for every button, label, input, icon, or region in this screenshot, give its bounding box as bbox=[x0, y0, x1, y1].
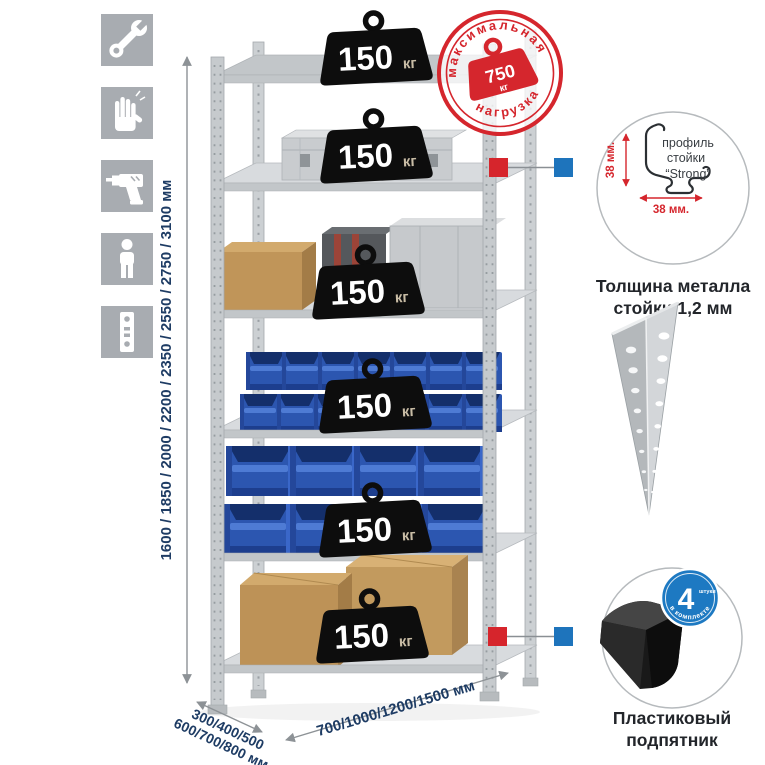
large-bins-back-row bbox=[226, 446, 486, 496]
max-load-stamp: 750 кг максимальная нагрузка bbox=[425, 0, 574, 148]
profile-horizontal-dim: 38 мм. bbox=[653, 204, 689, 216]
callout-red-marker bbox=[489, 158, 508, 177]
callout-blue-marker bbox=[554, 627, 573, 646]
shelf-load-unit: кг bbox=[401, 403, 416, 421]
infographic-canvas: 1600 / 1850 / 2000 / 2200 / 2350 / 2550 … bbox=[0, 0, 765, 765]
shelf-load-badge-2: 150 кг bbox=[317, 108, 433, 184]
drill-icon bbox=[101, 160, 153, 212]
profile-vertical-dim: 38 мм. bbox=[605, 142, 617, 178]
assembly-icons-column bbox=[101, 14, 153, 358]
height-dimension-label: 1600 / 1850 / 2000 / 2200 / 2350 / 2550 … bbox=[158, 180, 175, 561]
perforated-post-icon bbox=[101, 306, 153, 358]
badge-quantity-value: 4 bbox=[678, 583, 695, 616]
product-infographic: 1600 / 1850 / 2000 / 2200 / 2350 / 2550 … bbox=[0, 0, 765, 765]
callout-blue-marker bbox=[554, 158, 573, 177]
shelf-load-value: 150 bbox=[336, 386, 393, 426]
foot-caption-line2: подпятник bbox=[626, 730, 718, 750]
plastic-foot-detail: 4 штуки в комплекте Пластиковый подпятни… bbox=[600, 568, 742, 750]
profile-caption-line1: Толщина металла bbox=[596, 276, 751, 296]
shelf-load-value: 150 bbox=[329, 272, 386, 312]
corner-post-image bbox=[612, 303, 678, 515]
shelf-load-value: 150 bbox=[336, 510, 393, 550]
wrench-icon bbox=[101, 14, 153, 66]
profile-label-line1: профиль bbox=[662, 136, 714, 150]
shelf-load-badge-1: 150 кг bbox=[317, 10, 433, 86]
shelf-load-value: 150 bbox=[337, 38, 394, 78]
person-icon bbox=[101, 233, 153, 285]
shelf-load-unit: кг bbox=[402, 153, 417, 171]
shelf-load-value: 150 bbox=[333, 616, 390, 656]
profile-label-line2: стойки bbox=[667, 151, 705, 165]
quantity-badge: 4 штуки в комплекте bbox=[661, 569, 719, 627]
profile-label-line3: “Strong” bbox=[665, 167, 710, 181]
post-profile-detail: 38 мм. 38 мм. профиль стойки “Strong” То… bbox=[596, 112, 751, 318]
height-dimension: 1600 / 1850 / 2000 / 2200 / 2350 / 2550 … bbox=[158, 57, 187, 683]
shelf-load-unit: кг bbox=[398, 633, 413, 651]
foot-caption-line1: Пластиковый bbox=[613, 708, 731, 728]
callout-red-marker bbox=[488, 627, 507, 646]
shelf-load-unit: кг bbox=[401, 527, 416, 545]
cardboard-box-small bbox=[218, 242, 316, 310]
shelf-load-unit: кг bbox=[394, 289, 409, 307]
shelf-load-value: 150 bbox=[337, 136, 394, 176]
gloves-icon bbox=[101, 87, 153, 139]
shelf-load-unit: кг bbox=[402, 55, 417, 73]
badge-quantity-unit: штуки bbox=[699, 589, 716, 595]
